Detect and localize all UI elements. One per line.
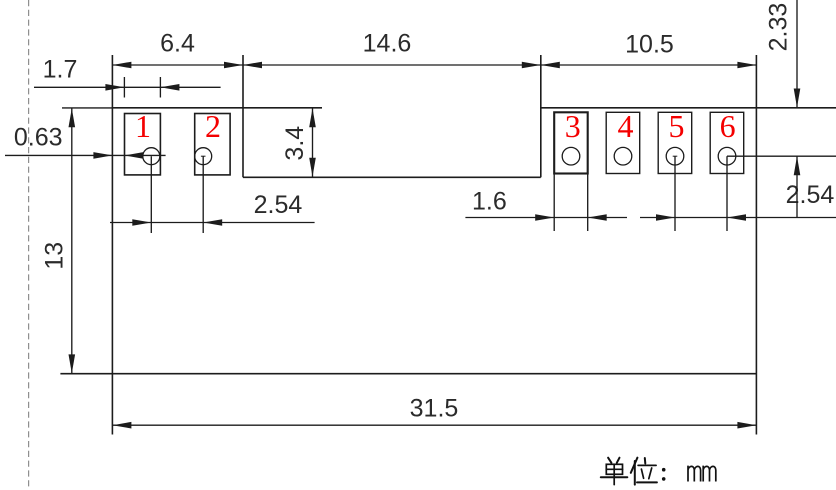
svg-text:1.7: 1.7 — [43, 56, 78, 84]
svg-text:2: 2 — [205, 108, 221, 144]
svg-text:2.33: 2.33 — [765, 3, 793, 52]
svg-text:6: 6 — [720, 108, 736, 144]
svg-text:3: 3 — [565, 108, 581, 144]
svg-text:6.4: 6.4 — [160, 30, 195, 58]
svg-text:5: 5 — [669, 108, 685, 144]
svg-text:13: 13 — [41, 242, 69, 270]
svg-text:2.54: 2.54 — [254, 191, 303, 219]
svg-text:10.5: 10.5 — [625, 31, 674, 59]
svg-text:3.4: 3.4 — [281, 126, 309, 161]
svg-text:2.54: 2.54 — [786, 181, 835, 209]
svg-text:0.63: 0.63 — [14, 124, 63, 152]
svg-text:1: 1 — [135, 108, 151, 144]
svg-text:4: 4 — [618, 108, 634, 144]
svg-text:1.6: 1.6 — [472, 188, 507, 216]
svg-text:31.5: 31.5 — [410, 395, 459, 423]
svg-text:14.6: 14.6 — [363, 30, 412, 58]
